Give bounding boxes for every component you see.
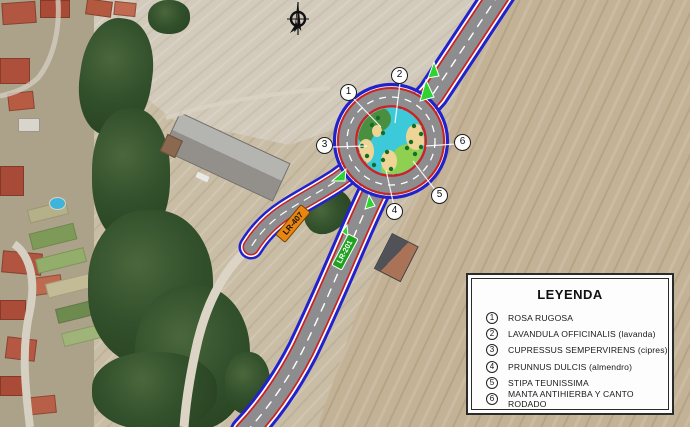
legend-item-label: CUPRESSUS SEMPERVIRENS (cipres): [508, 345, 668, 355]
legend-item: 3 CUPRESSUS SEMPERVIRENS (cipres): [486, 342, 668, 358]
legend-item-number: 5: [486, 377, 498, 389]
legend-item: 4 PRUNNUS DULCIS (almendro): [486, 359, 668, 375]
north-arrow-icon: [287, 2, 309, 35]
legend-item-label: PRUNNUS DULCIS (almendro): [508, 362, 632, 372]
legend-item: 2 LAVANDULA OFFICINALIS (lavanda): [486, 326, 668, 342]
legend-item: 1 ROSA RUGOSA: [486, 310, 668, 326]
legend-item-number: 1: [486, 312, 498, 324]
callout-5: 5: [431, 187, 448, 204]
legend-item-label: STIPA TEUNISSIMA: [508, 378, 589, 388]
legend-item-label: MANTA ANTIHIERBA Y CANTO RODADO: [508, 389, 668, 409]
roundabout-plan-canvas: 1 2 3 4 5 6 LR-407 LR-201 LEYENDA 1 ROSA…: [0, 0, 690, 427]
legend-item: 6 MANTA ANTIHIERBA Y CANTO RODADO: [486, 391, 668, 407]
designed-roads: [246, 0, 503, 427]
legend-item-number: 2: [486, 328, 498, 340]
callout-2: 2: [391, 67, 408, 84]
legend-item-label: ROSA RUGOSA: [508, 313, 573, 323]
callout-1: 1: [340, 84, 357, 101]
legend-title: LEYENDA: [486, 287, 668, 302]
legend-item-number: 3: [486, 344, 498, 356]
callout-3: 3: [316, 137, 333, 154]
callout-6: 6: [454, 134, 471, 151]
legend: LEYENDA 1 ROSA RUGOSA 2 LAVANDULA OFFICI…: [466, 273, 674, 415]
legend-item-label: LAVANDULA OFFICINALIS (lavanda): [508, 329, 656, 339]
legend-item-number: 4: [486, 361, 498, 373]
roundabout: [335, 85, 448, 198]
legend-frame: LEYENDA 1 ROSA RUGOSA 2 LAVANDULA OFFICI…: [471, 278, 669, 410]
legend-item-number: 6: [486, 393, 498, 405]
callout-4: 4: [386, 203, 403, 220]
